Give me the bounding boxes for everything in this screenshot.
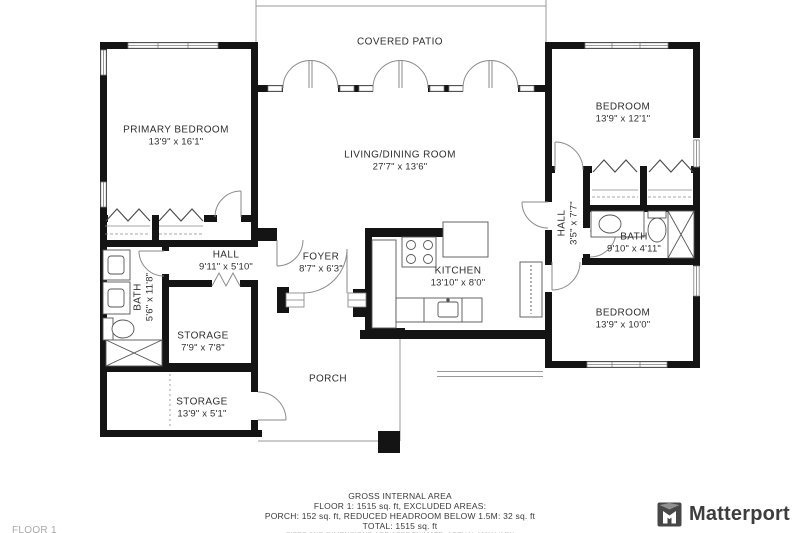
room-label-storage-bottom: STORAGE 13'9" x 5'1": [176, 397, 228, 420]
toilet: [103, 318, 113, 340]
shower: [668, 211, 694, 258]
kitchen-island: [443, 222, 488, 257]
floor-plan-page: COVERED PATIO PRIMARY BEDROOM 13'9" x 16…: [0, 0, 800, 533]
matterport-logo-icon: [657, 502, 682, 527]
room-label-covered-patio: COVERED PATIO: [357, 37, 443, 48]
room-label-living-dining: LIVING/DINING ROOM 27'7" x 13'6": [344, 150, 456, 173]
stove: [402, 237, 436, 267]
floor-selector-label: FLOOR 1: [12, 525, 57, 533]
room-label-primary-bedroom: PRIMARY BEDROOM 13'9" x 16'1": [123, 125, 229, 148]
room-label-bedroom-top-right: BEDROOM 13'9" x 12'1": [596, 102, 651, 125]
room-label-storage-inner: STORAGE 7'9" x 7'8": [177, 331, 229, 354]
room-label-bath-left: BATH 5'6" x 11'8": [133, 273, 156, 322]
kitchen-counter: [372, 240, 396, 328]
room-label-hall-left: HALL 9'11" x 5'10": [199, 250, 253, 273]
shower: [106, 340, 162, 366]
room-label-bedroom-bottom-right: BEDROOM 13'9" x 10'0": [596, 308, 651, 331]
room-label-porch: PORCH: [309, 374, 347, 385]
room-label-bath-right: BATH 9'10" x 4'11": [607, 232, 661, 255]
room-label-kitchen: KITCHEN 13'10" x 8'0": [431, 266, 486, 289]
room-label-hall-right: HALL 3'5" x 7'7": [557, 201, 580, 245]
floor-plan-drawing: [0, 0, 800, 533]
outdoor-boundaries: [256, 0, 546, 441]
toilet: [648, 211, 666, 218]
matterport-branding: Matterport: [657, 502, 790, 527]
closets: [105, 160, 693, 429]
gross-internal-area-line: GROSS INTERNAL AREA: [0, 491, 800, 501]
matterport-logo-text: Matterport: [689, 503, 790, 526]
kitchen-sink: [396, 298, 482, 322]
fridge: [520, 262, 542, 317]
room-label-foyer: FOYER 8'7" x 6'3": [299, 252, 343, 275]
